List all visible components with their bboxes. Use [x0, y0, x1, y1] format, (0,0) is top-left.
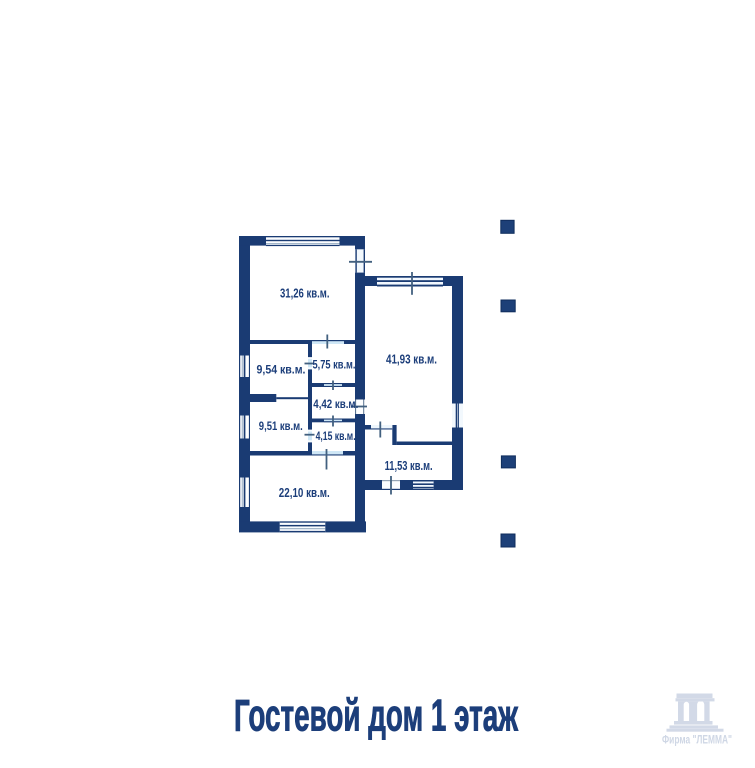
- svg-text:41,93 кв.м.: 41,93 кв.м.: [386, 351, 437, 366]
- svg-text:31,26 кв.м.: 31,26 кв.м.: [280, 286, 330, 301]
- svg-text:Гостевой дом 1 этаж: Гостевой дом 1 этаж: [234, 692, 518, 741]
- svg-text:11,53 кв.м.: 11,53 кв.м.: [385, 458, 433, 473]
- svg-text:9,51 кв.м.: 9,51 кв.м.: [259, 419, 303, 433]
- svg-text:9,54 кв.м.: 9,54 кв.м.: [257, 363, 306, 377]
- svg-text:4,15 кв.м.: 4,15 кв.м.: [316, 429, 356, 443]
- svg-text:5,75 кв.м.: 5,75 кв.м.: [313, 358, 356, 372]
- svg-text:4,42 кв.м.: 4,42 кв.м.: [313, 397, 358, 411]
- svg-text:22,10 кв.м.: 22,10 кв.м.: [279, 485, 330, 500]
- svg-text:Фирма "ЛЕММА": Фирма "ЛЕММА": [662, 735, 732, 747]
